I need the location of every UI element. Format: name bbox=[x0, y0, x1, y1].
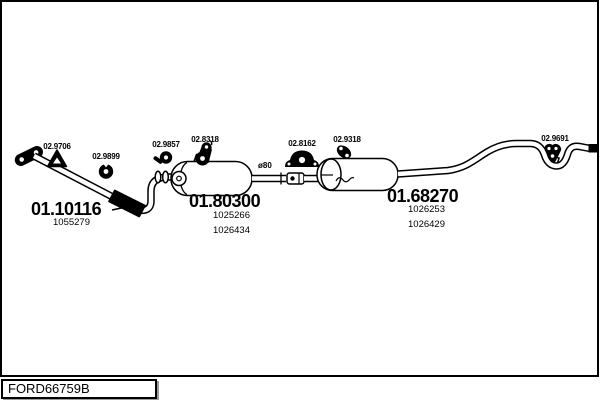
tail-pipe-shape bbox=[398, 144, 597, 175]
part-label-02-8162: 02.8162 bbox=[277, 139, 327, 148]
exhaust-drawing bbox=[0, 0, 600, 377]
tail-pipe-tip bbox=[589, 144, 598, 153]
grommet-icon bbox=[99, 164, 113, 179]
rear-muffler-shape bbox=[317, 159, 398, 191]
alt-part-number: 1026429 bbox=[408, 219, 445, 230]
centre-muffler-shape bbox=[171, 155, 252, 196]
part-label-02-9691: 02.9691 bbox=[530, 134, 580, 143]
flex-section bbox=[109, 191, 145, 217]
triangle-hanger-icon bbox=[48, 150, 67, 167]
part-label-02-8318: 02.8318 bbox=[180, 135, 230, 144]
sleeve-connector bbox=[287, 173, 304, 184]
part-label-02-9706: 02.9706 bbox=[32, 142, 82, 151]
mount-bracket-icon bbox=[285, 151, 319, 168]
clamp-icon bbox=[153, 151, 172, 164]
drawing-code: FORD66759B bbox=[8, 381, 90, 396]
intermediate-pipe bbox=[252, 173, 321, 185]
alt-part-number: 1025266 bbox=[213, 210, 250, 221]
part-label-01-80300: 01.80300 bbox=[189, 191, 260, 212]
part-label-02-9899: 02.9899 bbox=[81, 152, 131, 161]
alt-part-number: 1026434 bbox=[213, 225, 250, 236]
exhaust-parts-diagram: 02.9706 02.9899 02.9857 02.8318 02.8162 … bbox=[0, 0, 600, 400]
drawing-code-box: FORD66759B bbox=[1, 379, 157, 399]
alt-part-number: 1026253 bbox=[408, 204, 445, 215]
alt-part-number: 1055279 bbox=[53, 217, 90, 228]
part-label-02-9318: 02.9318 bbox=[322, 135, 372, 144]
pipe-diameter-label: ø80 bbox=[258, 161, 272, 170]
